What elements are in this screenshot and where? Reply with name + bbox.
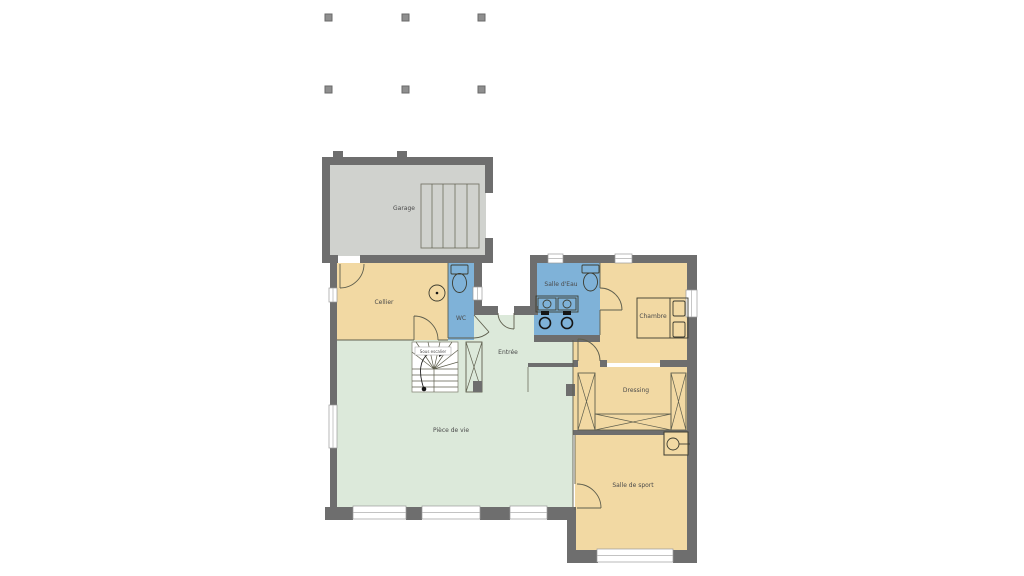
room-label-dressing: Dressing — [623, 387, 649, 394]
room-label-cellier: Cellier — [374, 299, 394, 306]
garage-door — [421, 184, 479, 248]
stair-arrow-origin — [422, 387, 427, 392]
wc-floor — [448, 263, 474, 340]
room-label-entree: Entrée — [498, 349, 518, 356]
exterior-posts — [325, 14, 485, 93]
staircase: Sous escalier — [412, 342, 458, 392]
room-fills — [329, 164, 687, 550]
room-label-piece-de-vie: Pièce de vie — [433, 427, 469, 434]
room-label-chambre: Chambre — [639, 313, 667, 320]
room-label-garage: Garage — [393, 205, 415, 212]
room-label-sous-escalier: Sous escalier — [420, 349, 447, 354]
room-label-wc: WC — [456, 315, 466, 322]
floor-plan-page: Sous escalier — [0, 0, 1024, 576]
dressing-floor — [573, 367, 687, 430]
room-label-salle-deau: Salle d'Eau — [544, 281, 577, 288]
room-label-salle-de-sport: Salle de sport — [612, 482, 654, 489]
floor-plan-drawing: Sous escalier — [0, 0, 1024, 576]
water-heater — [664, 432, 690, 455]
